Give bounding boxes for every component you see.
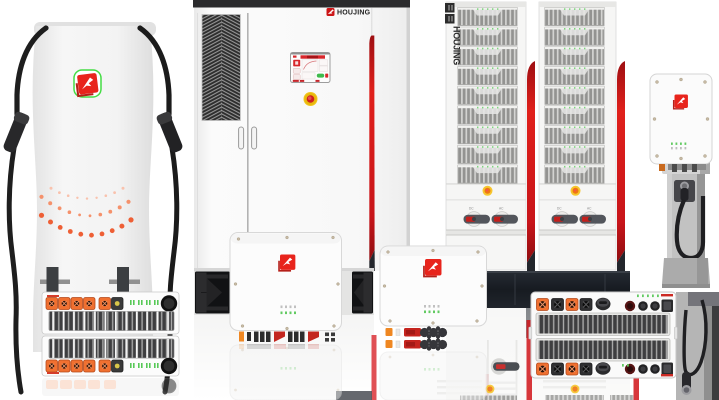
svg-text:HOUJING: HOUJING (452, 26, 462, 65)
svg-text:HOUJING: HOUJING (337, 10, 371, 17)
svg-text:DC: DC (557, 207, 562, 211)
svg-text:AC: AC (587, 207, 592, 211)
svg-text:AC: AC (499, 207, 504, 211)
svg-text:DC: DC (469, 207, 474, 211)
